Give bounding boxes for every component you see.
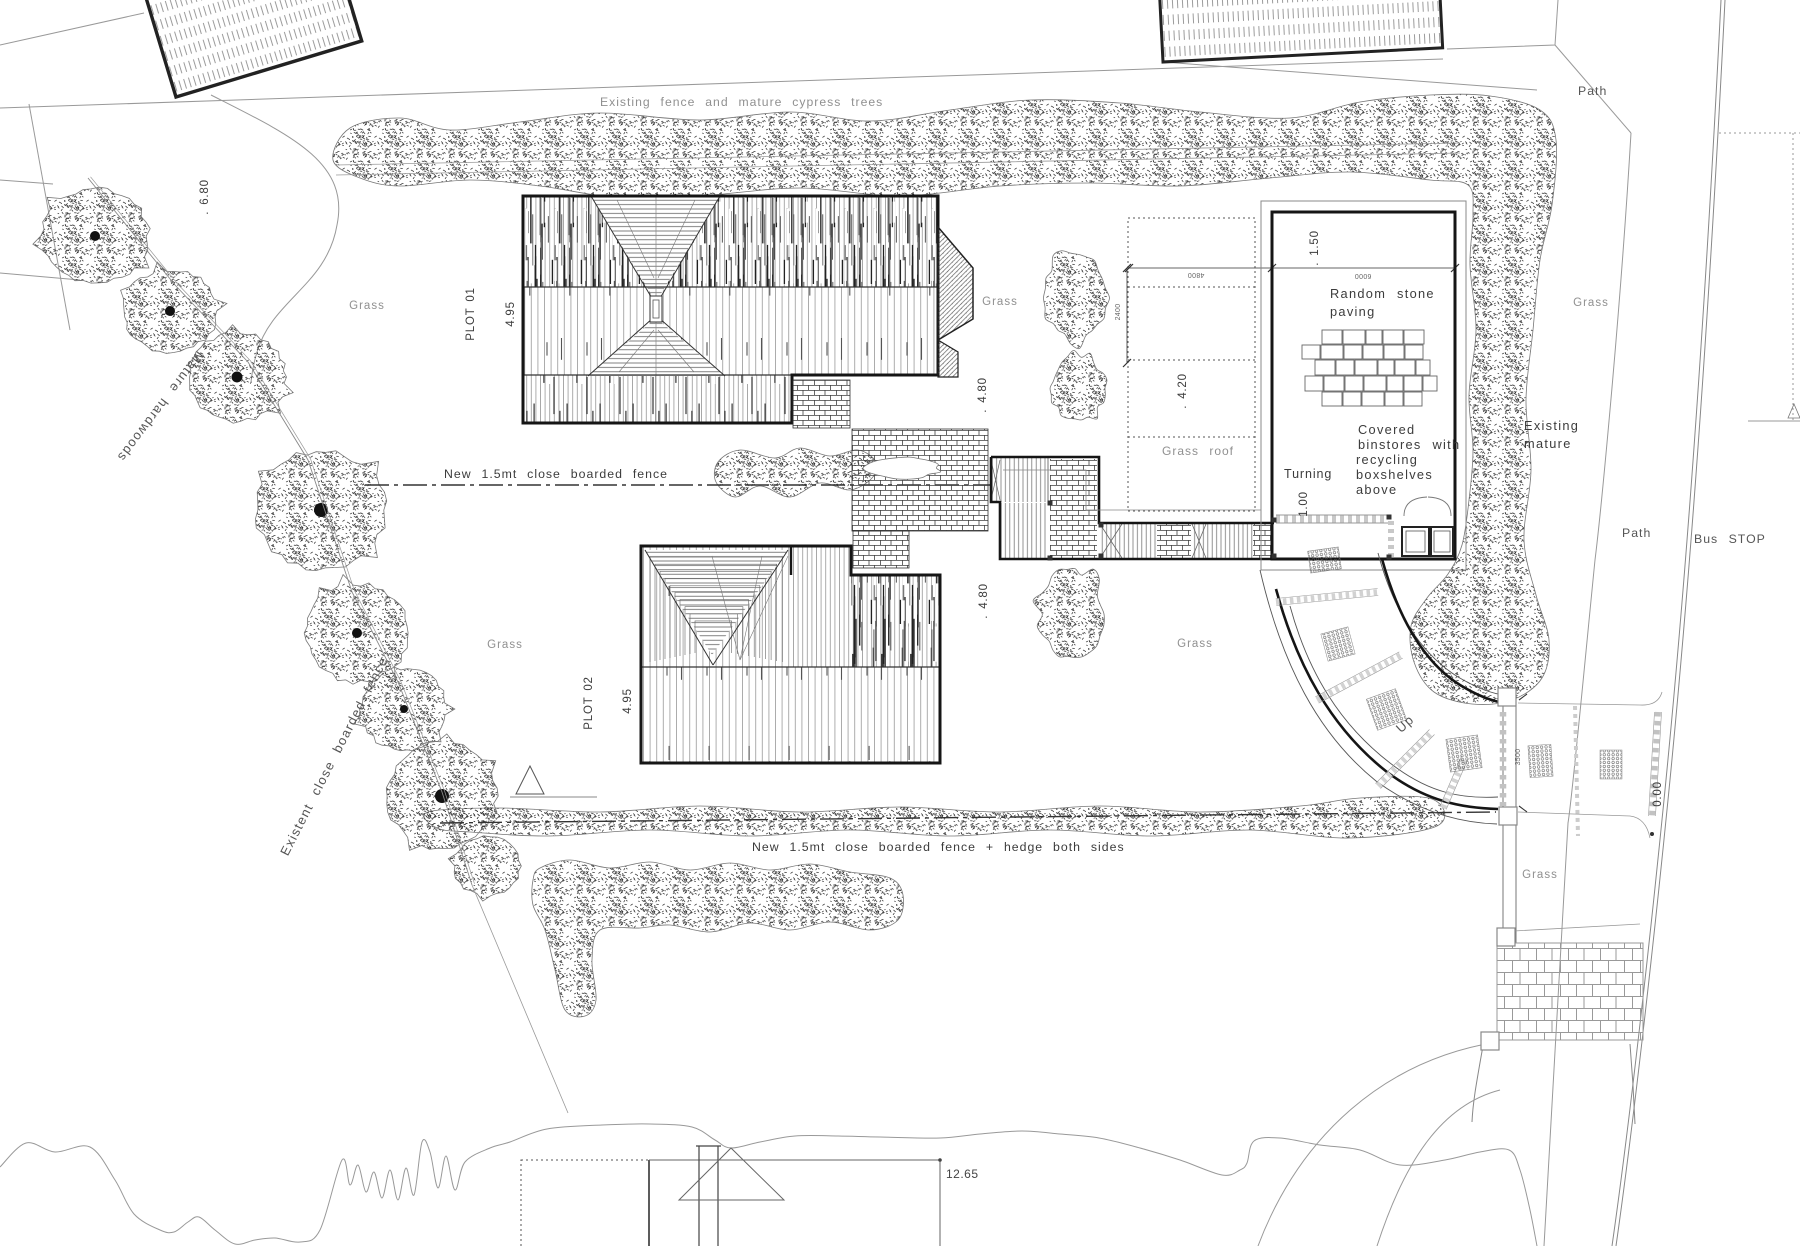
svg-text:Grass: Grass <box>982 296 1018 308</box>
svg-text:paving: paving <box>1330 304 1376 319</box>
svg-text:Random stone: Random stone <box>1330 286 1435 301</box>
svg-text:New 1.5mt close boarded fence: New 1.5mt close boarded fence + hedge bo… <box>752 840 1125 854</box>
svg-text:Grass: Grass <box>349 300 385 312</box>
svg-text:Existing: Existing <box>1524 418 1579 433</box>
svg-text:Grass: Grass <box>1522 869 1558 881</box>
svg-text:PLOT 01: PLOT 01 <box>465 287 477 340</box>
svg-text:. 4.80: . 4.80 <box>977 377 989 413</box>
svg-text:Turning: Turning <box>1284 467 1332 481</box>
svg-text:Bus STOP: Bus STOP <box>1694 532 1766 546</box>
svg-text:1.00: 1.00 <box>1298 491 1310 517</box>
svg-text:. 1.50: . 1.50 <box>1309 230 1321 266</box>
svg-text:Path: Path <box>1578 84 1607 98</box>
svg-text:above: above <box>1356 482 1397 497</box>
svg-text:recycling: recycling <box>1356 452 1418 467</box>
svg-text:Grass: Grass <box>487 639 523 651</box>
svg-text:New 1.5mt close boarded fence: New 1.5mt close boarded fence <box>444 467 668 481</box>
svg-text:12.65: 12.65 <box>946 1167 979 1181</box>
svg-text:Covered: Covered <box>1358 422 1415 437</box>
svg-text:boxshelves: boxshelves <box>1356 467 1433 482</box>
svg-text:. 6.80: . 6.80 <box>199 179 211 215</box>
svg-text:4800: 4800 <box>1188 271 1205 278</box>
svg-text:6000: 6000 <box>1355 272 1372 279</box>
svg-text:0.00: 0.00 <box>1652 781 1664 807</box>
svg-text:mature: mature <box>1524 436 1572 451</box>
svg-text:2400: 2400 <box>1115 304 1122 321</box>
svg-text:Grass roof: Grass roof <box>1162 444 1234 458</box>
svg-text:PLOT 02: PLOT 02 <box>583 676 595 729</box>
svg-text:Grass: Grass <box>1573 297 1609 309</box>
svg-text:Grass: Grass <box>1177 638 1213 650</box>
svg-text:. 4.20: . 4.20 <box>1177 373 1189 409</box>
svg-text:3500: 3500 <box>1515 749 1522 766</box>
svg-text:. 4.80: . 4.80 <box>978 583 990 619</box>
svg-text:4.95: 4.95 <box>622 688 634 714</box>
svg-text:4.95: 4.95 <box>505 301 517 327</box>
svg-text:Path: Path <box>1622 526 1651 540</box>
svg-text:binstores with: binstores with <box>1358 437 1460 452</box>
svg-text:Existing fence and mature cypr: Existing fence and mature cypress trees <box>600 95 883 109</box>
